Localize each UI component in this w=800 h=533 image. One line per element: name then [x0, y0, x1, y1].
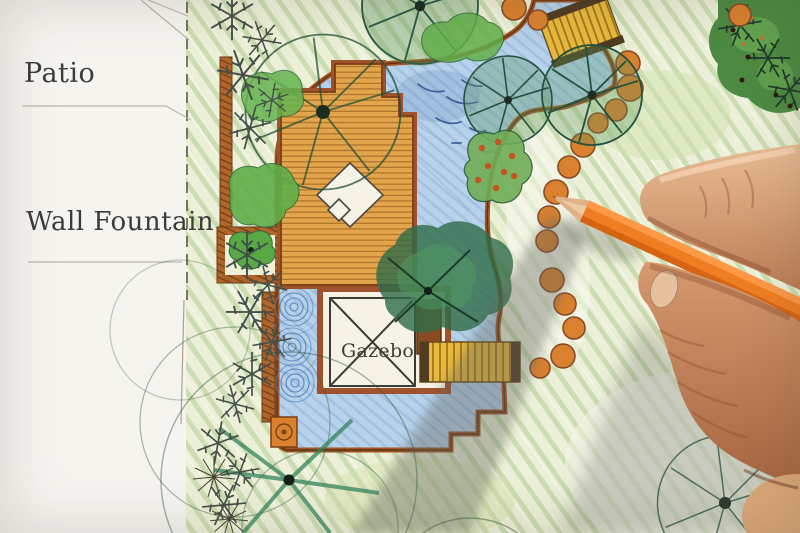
- patio-label: Patio: [24, 58, 95, 89]
- plan-drawing: [0, 0, 800, 533]
- garden-plan-photo: Patio Wall Fountain Gazebo: [0, 0, 800, 533]
- wall-fountain-label: Wall Fountain: [26, 207, 214, 237]
- spiky-plants: [193, 456, 248, 533]
- gazebo-label: Gazebo: [341, 340, 414, 362]
- fountain-jet-box: [271, 417, 297, 447]
